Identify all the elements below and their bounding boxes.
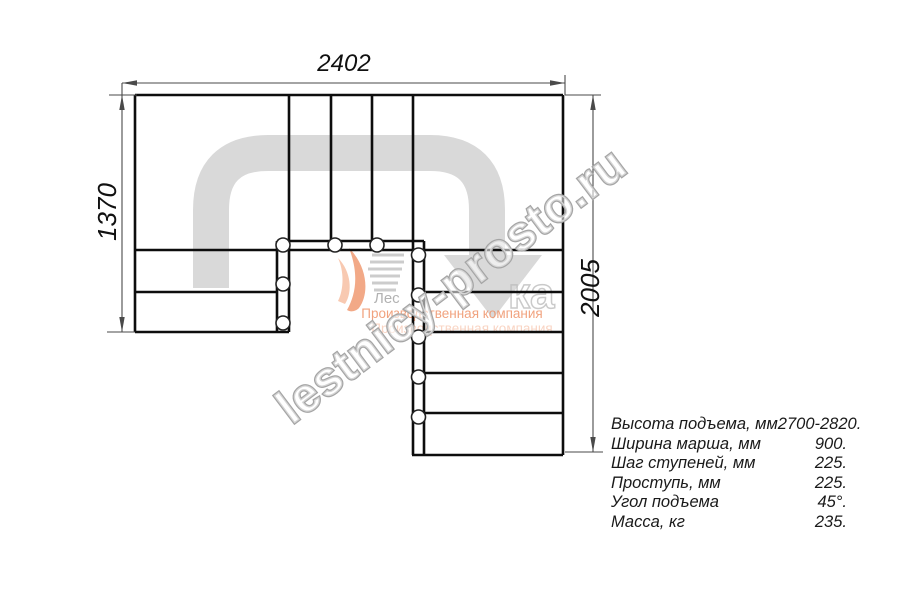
dim-arrow-icon [590,437,595,452]
baluster-circle [328,238,342,252]
dim-label-right: 2005 [575,259,605,318]
baluster-circle [412,410,426,424]
spec-label: Высота подъема, мм [611,415,778,435]
spec-value: 900. [815,435,847,455]
dim-arrow-icon [590,95,595,110]
baluster-circle [412,370,426,384]
spec-row: Угол подъема 45°. [611,493,847,513]
stair-plan-page: Лес ка Производственная компания Произво… [0,0,900,600]
spec-list: Высота подъема, мм 2700-2820. Ширина мар… [611,415,847,532]
spec-label: Шаг ступеней, мм [611,454,755,474]
dim-label-left: 1370 [92,183,122,241]
spec-label: Ширина марша, мм [611,435,761,455]
spec-value: 45°. [817,493,847,513]
baluster-circle [276,277,290,291]
dim-arrow-icon [119,95,124,110]
spec-row: Проступь, мм 225. [611,474,847,494]
spec-value: 235. [815,513,847,533]
dim-arrow-icon [122,80,137,85]
dim-arrow-icon [119,317,124,332]
spec-row: Шаг ступеней, мм 225. [611,454,847,474]
spec-row: Масса, кг 235. [611,513,847,533]
spec-label: Проступь, мм [611,474,721,494]
spec-value: 225. [815,454,847,474]
dim-label-top: 2402 [316,50,370,77]
spec-label: Масса, кг [611,513,685,533]
spec-value: 225. [815,474,847,494]
dim-arrow-icon [550,80,565,85]
spec-row: Ширина марша, мм 900. [611,435,847,455]
logo-flame-icon [338,258,350,304]
baluster-circle [412,248,426,262]
logo-flame-icon [347,248,365,311]
spec-label: Угол подъема [611,493,719,513]
baluster-circle [276,238,290,252]
spec-value: 2700-2820. [778,415,862,435]
baluster-circle [370,238,384,252]
spec-row: Высота подъема, мм 2700-2820. [611,415,847,435]
logo-steps-icon [368,255,404,290]
baluster-circle [276,316,290,330]
